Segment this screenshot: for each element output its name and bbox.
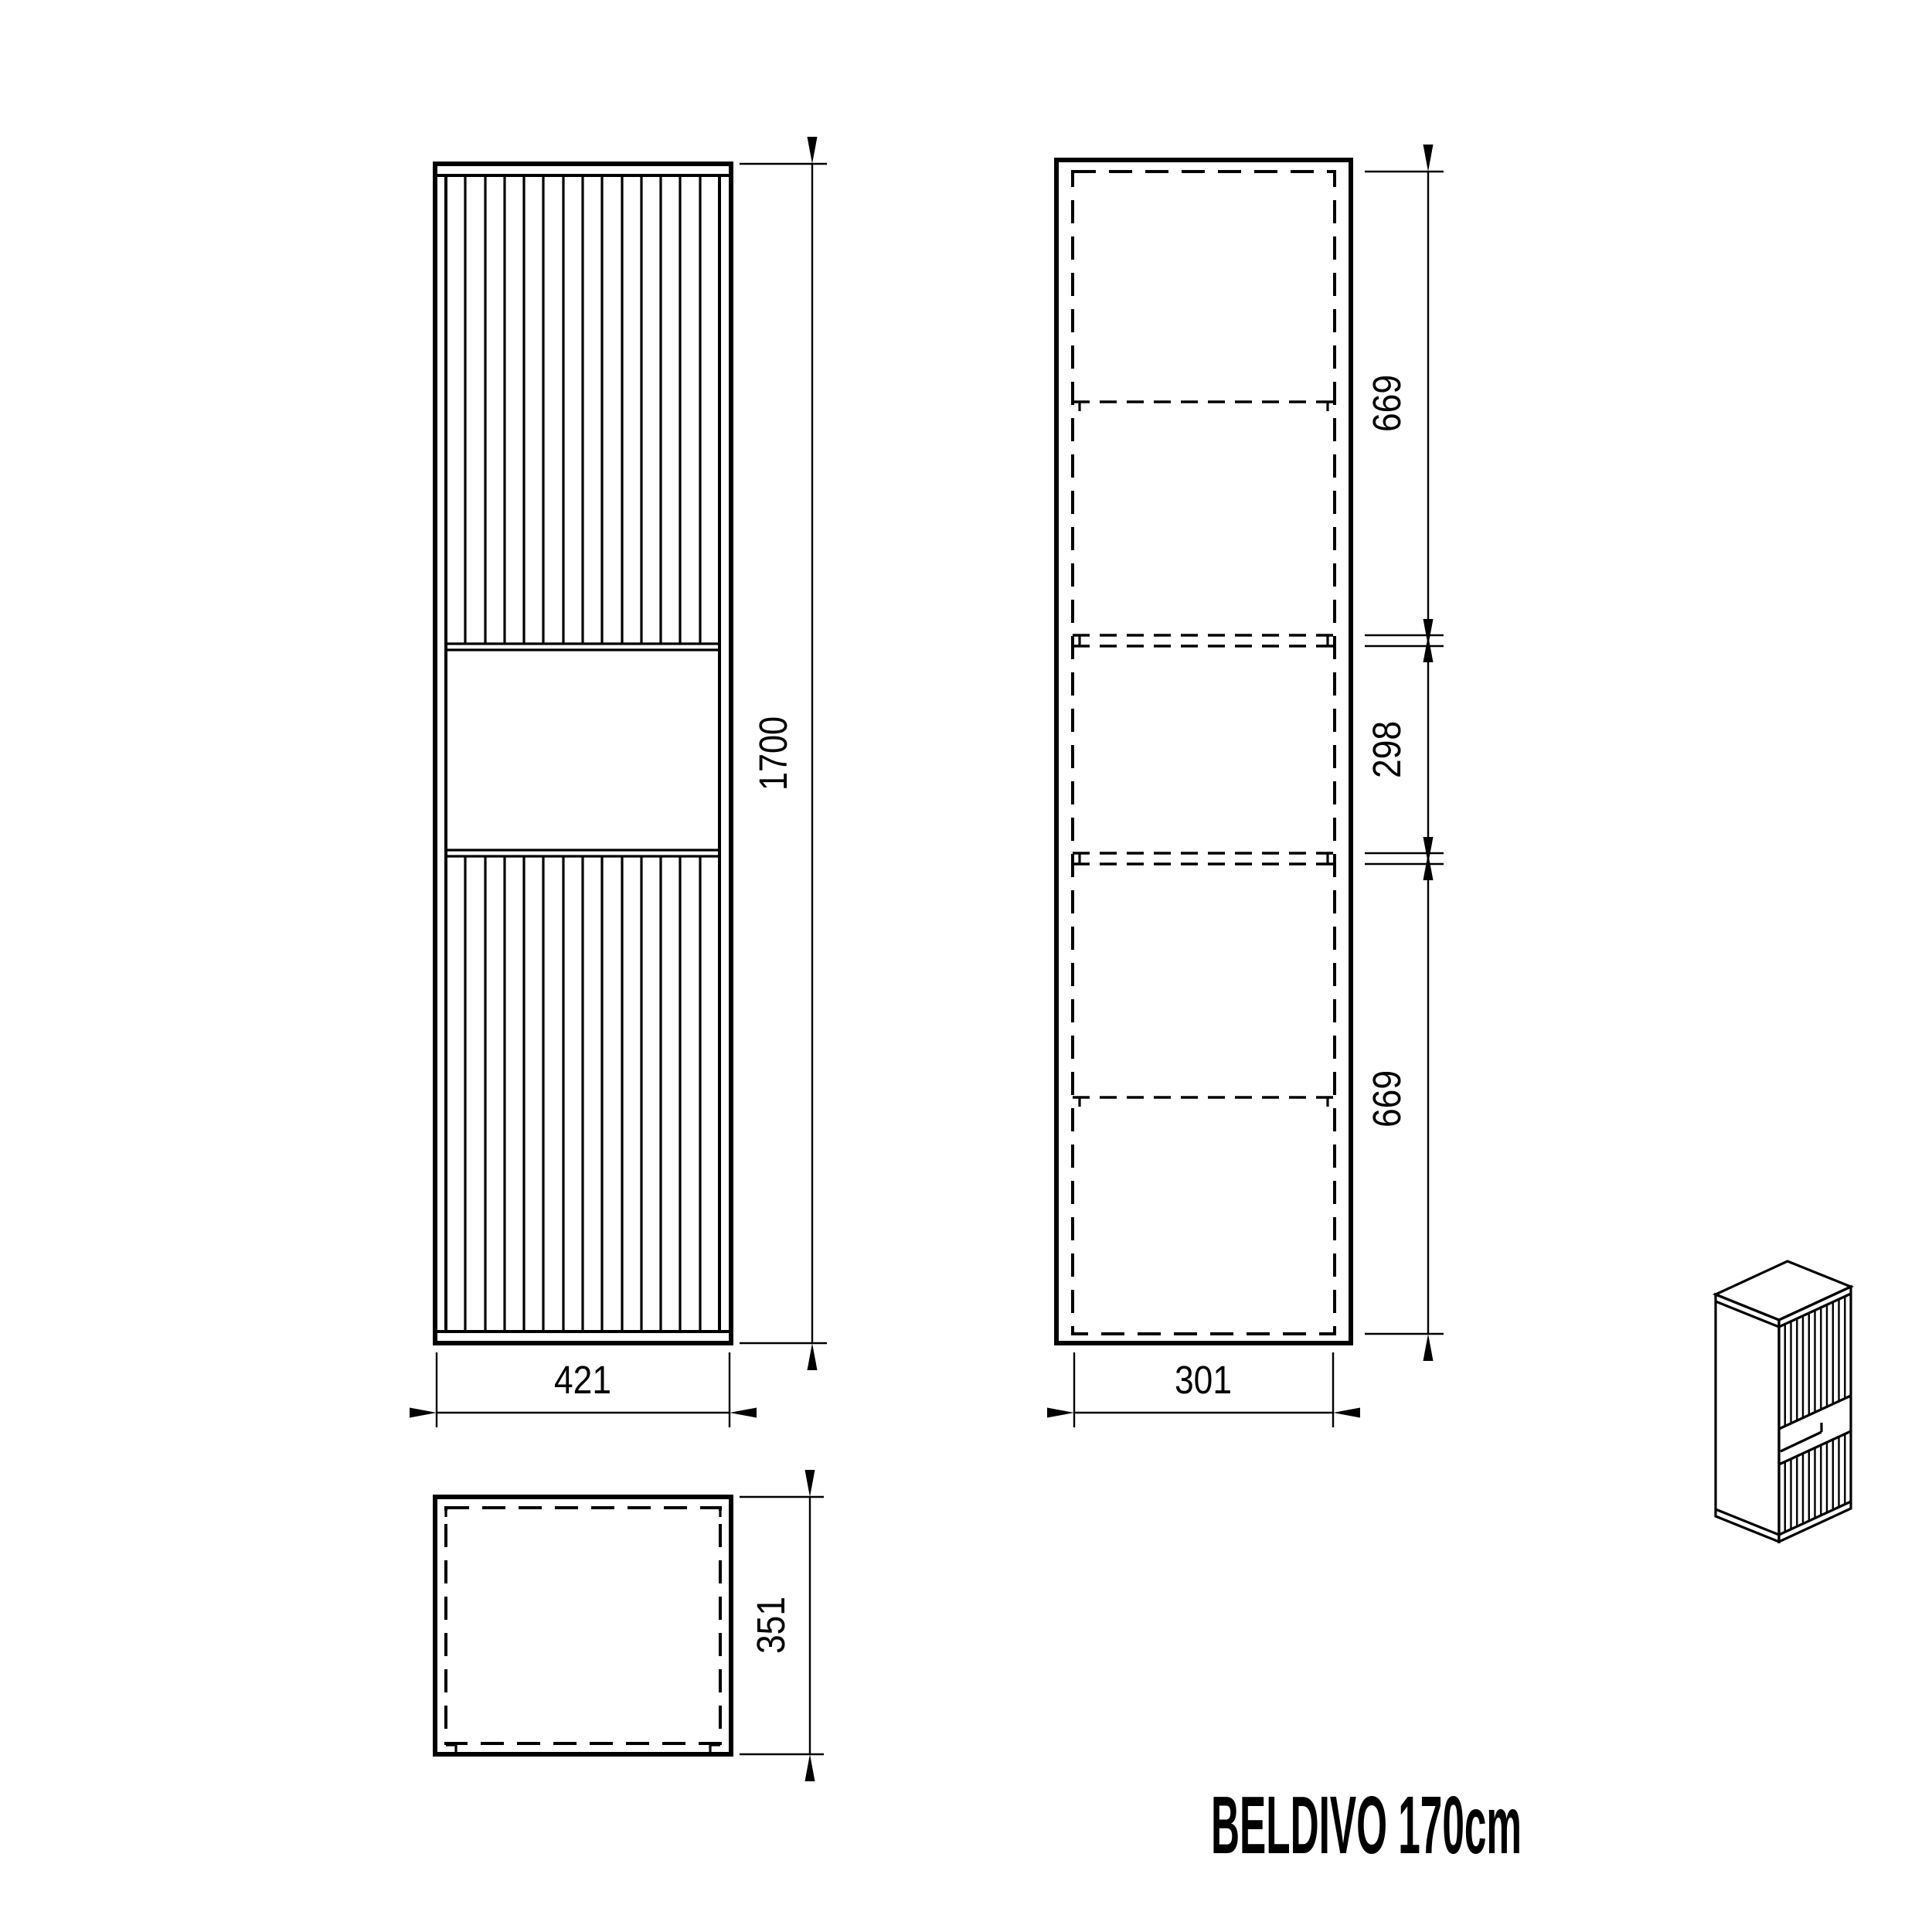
iso-top-cap-edge <box>1716 1294 1851 1327</box>
section-view <box>1056 160 1351 1343</box>
section-width-label: 301 <box>1175 1358 1232 1402</box>
top-inner-dashed <box>446 1508 720 1743</box>
section-shelf-fixed-upper <box>1073 635 1335 646</box>
iso-top-face <box>1716 1261 1851 1320</box>
section-height-dimensions: 669 298 669 <box>1365 172 1444 1334</box>
front-width-dimension: 421 <box>437 1352 730 1427</box>
front-width-label: 421 <box>554 1358 611 1402</box>
section-width-dimension: 301 <box>1074 1352 1333 1427</box>
front-view <box>435 164 731 1343</box>
top-depth-dimension: 351 <box>740 1497 824 1754</box>
front-height-dimension: 1700 <box>740 164 827 1343</box>
section-shelf-fixed-lower <box>1073 853 1335 864</box>
iso-flutes <box>1785 1297 1845 1533</box>
section-outline <box>1056 160 1351 1343</box>
section-shelf-adjustable-lower <box>1073 1097 1335 1107</box>
top-outline <box>435 1497 731 1754</box>
front-niche <box>446 644 719 856</box>
section-seg-mid-label: 298 <box>1365 721 1409 778</box>
iso-left-face <box>1716 1294 1779 1542</box>
front-upper-door-flutes <box>465 175 700 644</box>
top-corner-notches <box>446 1508 720 1754</box>
top-depth-label: 351 <box>749 1597 793 1654</box>
section-seg-bottom-label: 669 <box>1365 1070 1409 1128</box>
front-lower-door-flutes <box>465 856 700 1332</box>
section-seg-top-label: 669 <box>1365 375 1409 432</box>
section-shelf-adjustable-upper <box>1073 402 1335 411</box>
technical-drawing-canvas: 1700 421 <box>0 0 1932 1932</box>
product-title: BELDIVO 170cm <box>1211 1780 1522 1871</box>
isometric-view <box>1716 1261 1851 1542</box>
top-view <box>435 1497 731 1754</box>
front-height-label: 1700 <box>751 716 795 791</box>
section-inner-dashed <box>1073 172 1335 1334</box>
